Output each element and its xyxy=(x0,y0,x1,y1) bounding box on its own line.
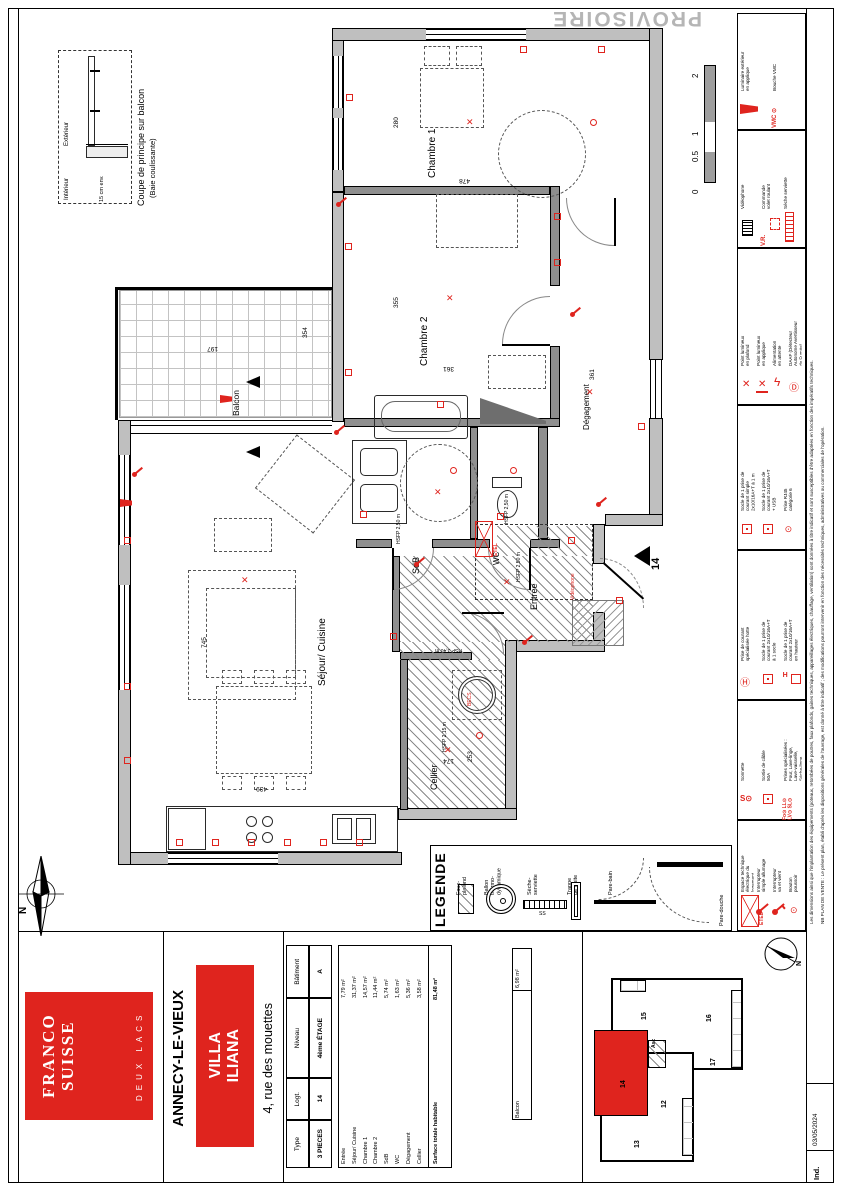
appliance-sockets-icon: Fo⊙ LL⊙ LV⊙ SL⊙ xyxy=(783,780,794,820)
hood-socket-icon: Ⓗ xyxy=(740,674,750,689)
room-label: Entrée xyxy=(529,520,539,610)
key-plan-compass-letter: N xyxy=(796,950,804,966)
legend-item-label: Point lumineux en plafond xyxy=(740,251,754,366)
socket-icon xyxy=(248,839,255,846)
socket-icon xyxy=(284,839,291,846)
legende-item-label: Sèche- serviette xyxy=(527,849,539,895)
vmc-icon xyxy=(450,467,457,474)
ceiling-light-icon: ✕ xyxy=(503,577,511,588)
compass-letter: N xyxy=(18,894,29,914)
area-value: 31,37 m² xyxy=(352,948,358,998)
dimension-label: 361 xyxy=(430,365,454,372)
switch-arm xyxy=(572,306,581,314)
switch-arm xyxy=(336,424,345,432)
room-label: Dégagement xyxy=(583,340,592,430)
doorbell-icon: S⊙ xyxy=(740,794,752,803)
sq xyxy=(791,674,801,684)
ballon-center xyxy=(500,898,506,904)
scale-label: 1 xyxy=(692,114,701,136)
legend-item-label: Socle de 1 prise de courant simple 2x10/… xyxy=(740,408,759,511)
switch-icon xyxy=(522,633,534,645)
coupe-dim: 15 cm env. xyxy=(99,166,105,202)
socket-icon xyxy=(176,839,183,846)
socket-icon xyxy=(346,94,353,101)
cable-outlet-icon xyxy=(763,794,773,804)
dimension-label: 280 xyxy=(393,104,400,128)
area-value: 1,63 m² xyxy=(395,948,401,998)
legend-item-label: Sortie de câble 50A xyxy=(761,703,780,781)
socket-icon xyxy=(497,513,504,520)
info-value-cell: A xyxy=(309,945,332,998)
index-date: 03/05/2024 xyxy=(812,1088,819,1146)
socket-icon xyxy=(320,839,327,846)
rj45-icon: ⊙ xyxy=(785,524,793,535)
socket-icon xyxy=(345,243,352,250)
address-label: 4, rue des mouettes xyxy=(261,1003,275,1113)
franco-suisse-logo: FRANCO SUISSE DEUX LACS xyxy=(25,992,153,1120)
vr-box xyxy=(770,218,780,230)
room-label: Chambre 2 xyxy=(419,276,430,366)
balcon-area-value: 6,98 m² xyxy=(515,950,521,988)
disclaimer-2: NB PLAN DE VENTE : Le présent plan, étab… xyxy=(820,16,831,924)
socket-icon xyxy=(763,674,773,684)
key-plan-unit-label: 13 xyxy=(634,1126,642,1148)
wall-light-base xyxy=(756,391,768,393)
dimension-label: 253 xyxy=(467,738,474,762)
total-area-value: 81,48 m² xyxy=(433,948,439,1000)
info-header-cell: Bâtiment xyxy=(286,945,309,998)
fridge xyxy=(168,808,206,850)
switch-icon xyxy=(596,495,608,507)
legend-item-label: Socle de 1 prise de courant 2x10/16A+T e… xyxy=(783,553,802,661)
total-area-name: Surface totale habitable xyxy=(433,1058,439,1164)
videophone-label: Vidéophone xyxy=(571,564,577,600)
coupe-title: Coupe de principe sur balcon xyxy=(136,44,146,206)
area-value: 14,57 m² xyxy=(363,948,369,998)
faux-plafond-swatch xyxy=(458,884,474,914)
dimension-label: 355 xyxy=(393,284,400,308)
area-name: Séjour/ Cuisine xyxy=(352,1082,358,1164)
switch-arm xyxy=(598,496,607,504)
coupe-slab xyxy=(86,146,128,158)
area-name: WC xyxy=(395,1082,401,1164)
plan-sheet: PROVISOIRE Coupe de principe sur balcon … xyxy=(0,0,842,1191)
area-name: SdB xyxy=(384,1082,390,1164)
dot xyxy=(767,798,769,800)
area-name: Entrée xyxy=(341,1082,347,1164)
legend-item-label: Bouche VMC xyxy=(772,16,801,91)
legend-item-label: Sèche serviette xyxy=(783,133,802,209)
becs-label: BECS xyxy=(468,680,474,706)
socket-icon xyxy=(742,524,752,534)
coupe-exterior-label: Extérieur xyxy=(64,96,71,146)
socket-icon xyxy=(437,401,444,408)
frame-line xyxy=(806,8,807,1183)
info-value-cell: 3 PIECES xyxy=(309,1120,332,1168)
ceiling-light-icon: ✕ xyxy=(586,387,594,398)
info-header-cell: Type xyxy=(286,1120,309,1168)
ballon-thermodynamique xyxy=(458,676,496,714)
window xyxy=(426,29,526,40)
seche-serviette-ss: SS xyxy=(539,911,546,917)
dimension-label: 478 xyxy=(446,177,470,184)
socket-icon xyxy=(616,597,623,604)
volet-roulant-icon: V.R. xyxy=(761,214,768,246)
area-value: 7,79 m² xyxy=(341,948,347,998)
ceiling-light-icon: ✕ xyxy=(742,379,750,390)
ballon-swatch xyxy=(486,884,516,914)
socket-icon xyxy=(124,683,131,690)
etel-box xyxy=(475,521,493,557)
dot xyxy=(767,528,769,530)
area-value: 3,58 m² xyxy=(417,948,423,998)
legend-item-label: Socle de 1 prise de courant 2x10/16A+T à… xyxy=(761,553,780,661)
switch-icon xyxy=(756,901,770,915)
dimension-label: 174 xyxy=(430,757,454,764)
legend-item-label: Vidéophone xyxy=(740,133,759,209)
dimension-label: 197 xyxy=(194,345,218,352)
key-plan-unit-label: 15 xyxy=(641,998,649,1020)
radiator-icon xyxy=(785,212,794,242)
legend-item-label: Sonnette xyxy=(740,703,759,781)
dimension-label: 361 xyxy=(589,356,596,380)
provisoire-watermark: PROVISOIRE xyxy=(552,4,702,30)
vmc-icon xyxy=(510,467,517,474)
switch-arm xyxy=(524,634,533,642)
wall-light-icon: ✕ xyxy=(758,379,766,390)
socket-icon xyxy=(124,537,131,544)
switch-icon xyxy=(772,901,786,915)
vmc-icon: VMC ⊙ xyxy=(772,96,779,128)
socket-icon xyxy=(345,369,352,376)
area-name: Dégagement xyxy=(406,1082,412,1164)
arm xyxy=(759,903,768,911)
scale-label: 0 xyxy=(692,172,701,194)
switch-icon xyxy=(336,195,348,207)
key-plan-unit-label: 17 xyxy=(710,1044,718,1066)
vmc-icon xyxy=(476,732,483,739)
city-label: ANNECY-LE-VIEUX xyxy=(171,990,188,1127)
socket-icon xyxy=(554,259,561,266)
area-value: 5,36 m² xyxy=(406,948,412,998)
legend-item-label: DAAF (Détecteur Autonome Avertisseur de … xyxy=(788,251,802,366)
ceiling-light-icon: ✕ xyxy=(466,117,474,128)
room-label: Séjour/ Cuisine xyxy=(317,596,328,686)
socket-icon xyxy=(554,213,561,220)
balcon-area-name: Balcon xyxy=(515,1068,521,1118)
window xyxy=(333,118,343,170)
window xyxy=(119,585,130,690)
legend-item-label: Interrupteur simple allumage xyxy=(756,823,770,892)
info-value-cell: 14 xyxy=(309,1078,332,1120)
coupe-subtitle: (Baie coulissante) xyxy=(149,58,157,198)
dimension-label: 439 xyxy=(243,785,267,792)
switch-icon xyxy=(570,305,582,317)
ceiling-light-icon: ✕ xyxy=(241,575,249,586)
switch-icon xyxy=(132,465,144,477)
titleblock-top-line xyxy=(18,931,806,932)
socket-icon xyxy=(124,757,131,764)
brand-sub: DEUX LACS xyxy=(136,992,145,1120)
frame-line xyxy=(18,8,19,1183)
daaf-icon: Ⓓ xyxy=(789,379,799,394)
trappe-swatch xyxy=(571,882,581,920)
key-plan-unit-label: 14 xyxy=(620,1066,628,1088)
scale-label: 2 xyxy=(692,56,701,78)
videophone-icon xyxy=(742,220,753,236)
switch-arm xyxy=(134,466,143,474)
legende-item-label: Pare-douche xyxy=(719,880,725,926)
unit-marker-number: 14 xyxy=(650,546,662,570)
high-socket-icon: H xyxy=(783,672,788,679)
legend-item-label: Prise RJ45 catégorie 6 xyxy=(783,408,802,511)
index-label: Ind. xyxy=(813,1156,821,1180)
residence-badge: VILLA ILIANA xyxy=(196,965,254,1147)
socket-icon xyxy=(356,839,363,846)
legend-item-label: Socle de 1 prise de courant 2x10/16A+T +… xyxy=(761,408,780,511)
legend-item-label: Commande volet roulant xyxy=(761,133,780,209)
socket-icon xyxy=(212,839,219,846)
socket-icon xyxy=(568,537,575,544)
ceiling-light-icon: ✕ xyxy=(446,293,454,304)
room-label: Balcon xyxy=(232,326,242,416)
disclaimer-1: Les dimensions ainsi que l'implantation … xyxy=(809,16,820,924)
socket-icon xyxy=(598,46,605,53)
brand-name: FRANCO SUISSE xyxy=(39,992,105,1120)
seche-serviette-swatch xyxy=(523,900,567,909)
key-plan-unit-label: 16 xyxy=(706,1000,714,1022)
area-name: Cellier xyxy=(417,1082,423,1164)
area-name: Chambre 2 xyxy=(373,1082,379,1164)
legend-item-label: Luminaire extérieur en applique xyxy=(740,16,769,91)
key-plan-compass xyxy=(763,936,799,972)
sliding-bay-window xyxy=(131,420,332,434)
socket-icon xyxy=(520,46,527,53)
window xyxy=(333,56,343,108)
dimension-label: 745 xyxy=(201,624,208,648)
window xyxy=(650,360,662,418)
area-name: Chambre 1 xyxy=(363,1082,369,1164)
legend-item-label: Espace technique électrique du logement xyxy=(740,823,754,892)
pare-bain-bar xyxy=(594,900,656,904)
ceiling-light-icon: ✕ xyxy=(444,745,452,756)
legend-item-label: Alimentation en attente xyxy=(772,251,786,366)
ceiling-height-label: HSP 3,40 m xyxy=(416,645,462,653)
dot xyxy=(746,528,748,530)
legend-item-label: Bouton poussoir xyxy=(788,823,802,892)
legend-item-label: Prise de courant spécialisée hotte xyxy=(740,553,759,661)
switch-icon xyxy=(414,555,426,567)
legend-item-label: Point lumineux en applique xyxy=(756,251,770,366)
area-value: 11,44 m² xyxy=(373,948,379,998)
info-header-cell: Logt. xyxy=(286,1078,309,1120)
scale-label: 0.5 xyxy=(692,140,701,162)
info-value-cell: 4ème ÉTAGE xyxy=(309,998,332,1078)
socket-icon xyxy=(763,524,773,534)
window xyxy=(168,853,278,864)
area-value: 5,74 m² xyxy=(384,948,390,998)
coupe-interior-label: Intérieur xyxy=(64,160,71,200)
ceiling-height-label: HSFP 2,50 m xyxy=(517,536,523,582)
legend-item-label: Interrupteur va et vient xyxy=(772,823,786,892)
dimension-label: 354 xyxy=(302,314,309,338)
room-label: Cellier xyxy=(429,700,439,790)
residence-name: VILLA ILIANA xyxy=(207,1029,243,1082)
dot xyxy=(767,678,769,680)
power-wait-icon: ϟ xyxy=(774,375,780,389)
socket-icon xyxy=(638,423,645,430)
switch-arm xyxy=(416,556,425,564)
room-label: Chambre 1 xyxy=(427,88,438,178)
key-plan-unit-label: 12 xyxy=(661,1086,669,1108)
info-header-cell: Niveau xyxy=(286,998,309,1078)
key-plan-unit-label: Asc xyxy=(652,1026,658,1048)
legend-item-label: Prises spécialisées : Four, Lave-linge, … xyxy=(783,703,802,781)
room-label: WC xyxy=(493,475,502,565)
socket-icon xyxy=(390,633,397,640)
vmc-icon xyxy=(590,119,597,126)
legende-title: LEGENDE xyxy=(433,849,449,927)
ceiling-height-label: HSFP 2,50 m xyxy=(505,478,511,524)
ceiling-height-label: HSFP 2,50 m xyxy=(397,498,403,544)
switch-arm xyxy=(338,196,347,204)
ceiling-light-icon: ✕ xyxy=(434,487,442,498)
switch-icon xyxy=(334,423,346,435)
push-button-icon: ⊙ xyxy=(790,905,798,916)
socket-icon xyxy=(360,511,367,518)
